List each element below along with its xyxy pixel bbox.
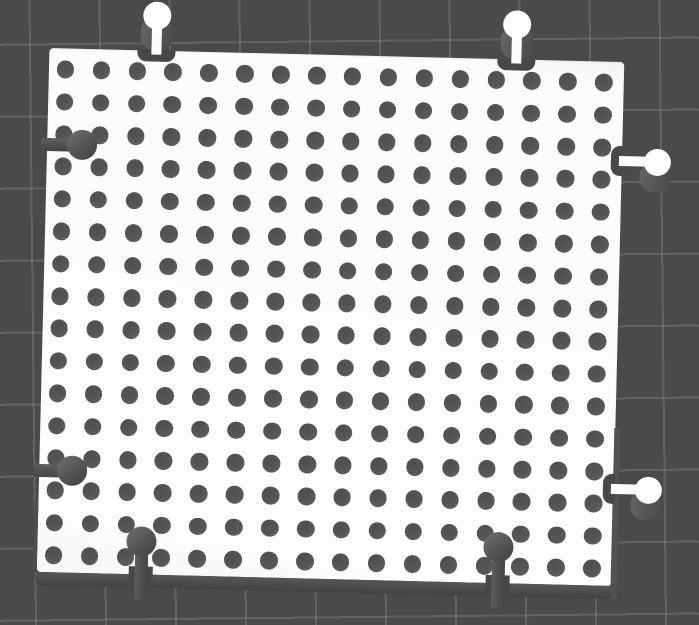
hole xyxy=(306,99,324,117)
hole xyxy=(338,261,356,279)
hole xyxy=(117,483,135,501)
hole xyxy=(593,138,611,156)
hole xyxy=(230,291,248,309)
hole xyxy=(162,127,180,145)
hole xyxy=(153,516,171,534)
hole xyxy=(342,132,360,150)
hole xyxy=(56,60,74,78)
hole xyxy=(378,100,396,118)
hole xyxy=(126,127,144,145)
hole xyxy=(53,190,71,208)
hole xyxy=(374,262,392,280)
hole xyxy=(122,288,140,306)
hole xyxy=(121,321,139,339)
hole xyxy=(224,550,242,568)
hole xyxy=(267,260,285,278)
hole xyxy=(589,300,607,318)
hole xyxy=(480,330,498,348)
hole xyxy=(120,386,138,404)
hole xyxy=(479,394,497,412)
hole xyxy=(549,461,567,479)
hole xyxy=(55,92,73,110)
hole xyxy=(547,526,565,544)
hole xyxy=(405,457,423,475)
hole xyxy=(408,360,426,378)
hole xyxy=(264,357,282,375)
hole xyxy=(127,94,145,112)
hole xyxy=(594,73,612,91)
hole xyxy=(158,289,176,307)
hole xyxy=(414,101,432,119)
hole xyxy=(91,93,109,111)
hole xyxy=(592,170,610,188)
hole xyxy=(261,486,279,504)
hole xyxy=(228,388,246,406)
hole xyxy=(480,362,498,380)
hole xyxy=(551,364,569,382)
hole xyxy=(123,256,141,274)
hole xyxy=(333,488,351,506)
hole xyxy=(370,457,388,475)
hole xyxy=(269,162,287,180)
pin-head xyxy=(502,10,531,39)
hole xyxy=(583,527,601,545)
hole xyxy=(514,428,532,446)
hole xyxy=(413,134,431,152)
hole xyxy=(339,229,357,247)
hole xyxy=(197,161,215,179)
hole xyxy=(594,106,612,124)
hole xyxy=(235,97,253,115)
hole xyxy=(585,462,603,480)
hole xyxy=(47,416,65,434)
hole xyxy=(302,260,320,278)
hole xyxy=(372,359,390,377)
hole xyxy=(558,105,576,123)
pin-head xyxy=(483,531,514,562)
hole xyxy=(54,157,72,175)
hole xyxy=(442,426,460,444)
hole xyxy=(447,232,465,250)
hole xyxy=(482,265,500,283)
hole xyxy=(515,395,533,413)
hole xyxy=(119,418,137,436)
hole xyxy=(406,425,424,443)
hole xyxy=(331,553,349,571)
hole xyxy=(83,417,101,435)
hole xyxy=(518,266,536,284)
hole xyxy=(263,422,281,440)
hole xyxy=(192,355,210,373)
hole xyxy=(587,365,605,383)
hole xyxy=(483,232,501,250)
hole xyxy=(547,558,565,576)
hole xyxy=(513,460,531,478)
hole xyxy=(586,397,604,415)
hole xyxy=(440,523,458,541)
hole xyxy=(477,459,495,477)
hole xyxy=(373,327,391,345)
hole xyxy=(85,352,103,370)
hole xyxy=(411,231,429,249)
hole xyxy=(588,332,606,350)
pin-head xyxy=(126,526,157,557)
hole xyxy=(377,165,395,183)
hole xyxy=(586,429,604,447)
hole xyxy=(511,557,529,575)
hole xyxy=(80,547,98,565)
pin-head xyxy=(66,129,97,160)
hole xyxy=(332,520,350,538)
hole xyxy=(376,197,394,215)
hole xyxy=(224,518,242,536)
hole xyxy=(485,135,503,153)
hole xyxy=(259,551,277,569)
hole xyxy=(233,162,251,180)
hole xyxy=(439,555,457,573)
hole xyxy=(266,292,284,310)
hole xyxy=(512,492,530,510)
hole xyxy=(450,102,468,120)
hole xyxy=(92,61,110,79)
hole xyxy=(228,356,246,374)
hole xyxy=(444,329,462,347)
hole xyxy=(409,328,427,346)
hole xyxy=(405,490,423,508)
hole xyxy=(45,513,63,531)
hole xyxy=(232,194,250,212)
hole xyxy=(371,392,389,410)
hole xyxy=(154,451,172,469)
hole xyxy=(299,422,317,440)
hole xyxy=(296,520,314,538)
hole xyxy=(415,69,433,87)
hole xyxy=(343,67,361,85)
hole xyxy=(341,164,359,182)
hole xyxy=(227,421,245,439)
hole xyxy=(449,134,467,152)
hole xyxy=(448,199,466,217)
hole xyxy=(190,452,208,470)
hole xyxy=(338,294,356,312)
hole xyxy=(86,288,104,306)
hole xyxy=(445,296,463,314)
hole xyxy=(403,555,421,573)
hole xyxy=(413,166,431,184)
hole xyxy=(299,390,317,408)
hole xyxy=(163,95,181,113)
hole xyxy=(522,104,540,122)
hole xyxy=(194,290,212,308)
hole xyxy=(271,98,289,116)
hole xyxy=(157,322,175,340)
hole xyxy=(304,196,322,214)
hole xyxy=(369,489,387,507)
hole xyxy=(334,456,352,474)
hole xyxy=(515,363,533,381)
hole xyxy=(125,191,143,209)
hole xyxy=(550,429,568,447)
hole xyxy=(410,263,428,281)
hole xyxy=(487,71,505,89)
hole xyxy=(86,320,104,338)
hole xyxy=(481,297,499,315)
hole xyxy=(337,326,355,344)
hole xyxy=(298,455,316,473)
pin-head xyxy=(142,1,171,30)
hole xyxy=(548,493,566,511)
hole xyxy=(191,420,209,438)
hole xyxy=(519,201,537,219)
hole xyxy=(50,319,68,337)
hole xyxy=(552,331,570,349)
hole xyxy=(231,259,249,277)
hole xyxy=(377,133,395,151)
hole xyxy=(164,63,182,81)
hole xyxy=(44,546,62,564)
viewport-3d xyxy=(0,0,699,625)
hole xyxy=(188,549,206,567)
hole xyxy=(52,222,70,240)
hole xyxy=(81,514,99,532)
hole xyxy=(193,323,211,341)
hole xyxy=(49,352,67,370)
hole xyxy=(367,554,385,572)
hole xyxy=(484,168,502,186)
hole xyxy=(225,485,243,503)
hole xyxy=(554,234,572,252)
hole xyxy=(82,482,100,500)
hole xyxy=(523,71,541,89)
hole xyxy=(590,235,608,253)
hole xyxy=(87,255,105,273)
hole xyxy=(412,198,430,216)
hole xyxy=(511,525,529,543)
hole xyxy=(307,66,325,84)
hole xyxy=(153,484,171,502)
hole xyxy=(196,193,214,211)
hole xyxy=(520,169,538,187)
hole xyxy=(124,224,142,242)
hole xyxy=(262,454,280,472)
hole xyxy=(591,203,609,221)
hole xyxy=(556,169,574,187)
hole xyxy=(89,190,107,208)
hole xyxy=(189,485,207,503)
hole xyxy=(226,453,244,471)
pin-head xyxy=(56,455,87,486)
hole xyxy=(342,99,360,117)
hole xyxy=(306,131,324,149)
hole xyxy=(295,552,313,570)
hole xyxy=(440,491,458,509)
hole xyxy=(160,225,178,243)
hole xyxy=(305,163,323,181)
hole xyxy=(519,233,537,251)
hole xyxy=(200,64,218,82)
hole xyxy=(229,323,247,341)
hole xyxy=(270,130,288,148)
hole xyxy=(50,287,68,305)
hole xyxy=(88,223,106,241)
hole xyxy=(297,487,315,505)
hole xyxy=(268,195,286,213)
hole xyxy=(521,136,539,154)
hole xyxy=(551,396,569,414)
hole xyxy=(553,299,571,317)
hole xyxy=(161,160,179,178)
hole xyxy=(407,393,425,411)
hole xyxy=(192,387,210,405)
hole xyxy=(155,419,173,437)
hole xyxy=(46,481,64,499)
hole xyxy=(409,295,427,313)
hole xyxy=(234,129,252,147)
hole xyxy=(301,325,319,343)
hole xyxy=(271,65,289,83)
hole xyxy=(128,62,146,80)
hole xyxy=(379,68,397,86)
hole xyxy=(590,267,608,285)
hole xyxy=(582,559,600,577)
hole xyxy=(263,389,281,407)
hole xyxy=(267,227,285,245)
hole xyxy=(446,264,464,282)
hole xyxy=(160,192,178,210)
hole xyxy=(231,226,249,244)
hole xyxy=(441,458,459,476)
hole xyxy=(517,298,535,316)
hole xyxy=(555,202,573,220)
hole xyxy=(260,519,278,537)
hole xyxy=(198,128,216,146)
hole xyxy=(51,254,69,272)
hole xyxy=(368,521,386,539)
hole xyxy=(156,387,174,405)
hole xyxy=(196,225,214,243)
hole xyxy=(152,548,170,566)
hole xyxy=(125,159,143,177)
hole xyxy=(159,257,177,275)
hole xyxy=(302,293,320,311)
hole xyxy=(557,137,575,155)
hole xyxy=(340,197,358,215)
hole xyxy=(335,391,353,409)
hole xyxy=(370,424,388,442)
hole xyxy=(375,230,393,248)
hole xyxy=(303,228,321,246)
hole xyxy=(443,394,461,412)
hole xyxy=(373,295,391,313)
hole xyxy=(48,384,66,402)
hole xyxy=(404,522,422,540)
hole xyxy=(444,361,462,379)
hole xyxy=(554,267,572,285)
hole xyxy=(265,324,283,342)
hole xyxy=(478,427,496,445)
hole xyxy=(448,167,466,185)
hole xyxy=(486,103,504,121)
hole xyxy=(451,70,469,88)
hole xyxy=(121,353,139,371)
hole xyxy=(118,450,136,468)
hole xyxy=(334,423,352,441)
hole xyxy=(195,258,213,276)
pegboard-plate[interactable] xyxy=(36,48,623,586)
hole xyxy=(584,494,602,512)
hole xyxy=(300,358,318,376)
hole xyxy=(84,385,102,403)
hole xyxy=(476,492,494,510)
hole xyxy=(336,359,354,377)
hole xyxy=(558,72,576,90)
hole xyxy=(157,354,175,372)
hole xyxy=(235,64,253,82)
hole xyxy=(484,200,502,218)
hole xyxy=(199,96,217,114)
hole xyxy=(516,331,534,349)
hole xyxy=(188,517,206,535)
hole xyxy=(90,158,108,176)
